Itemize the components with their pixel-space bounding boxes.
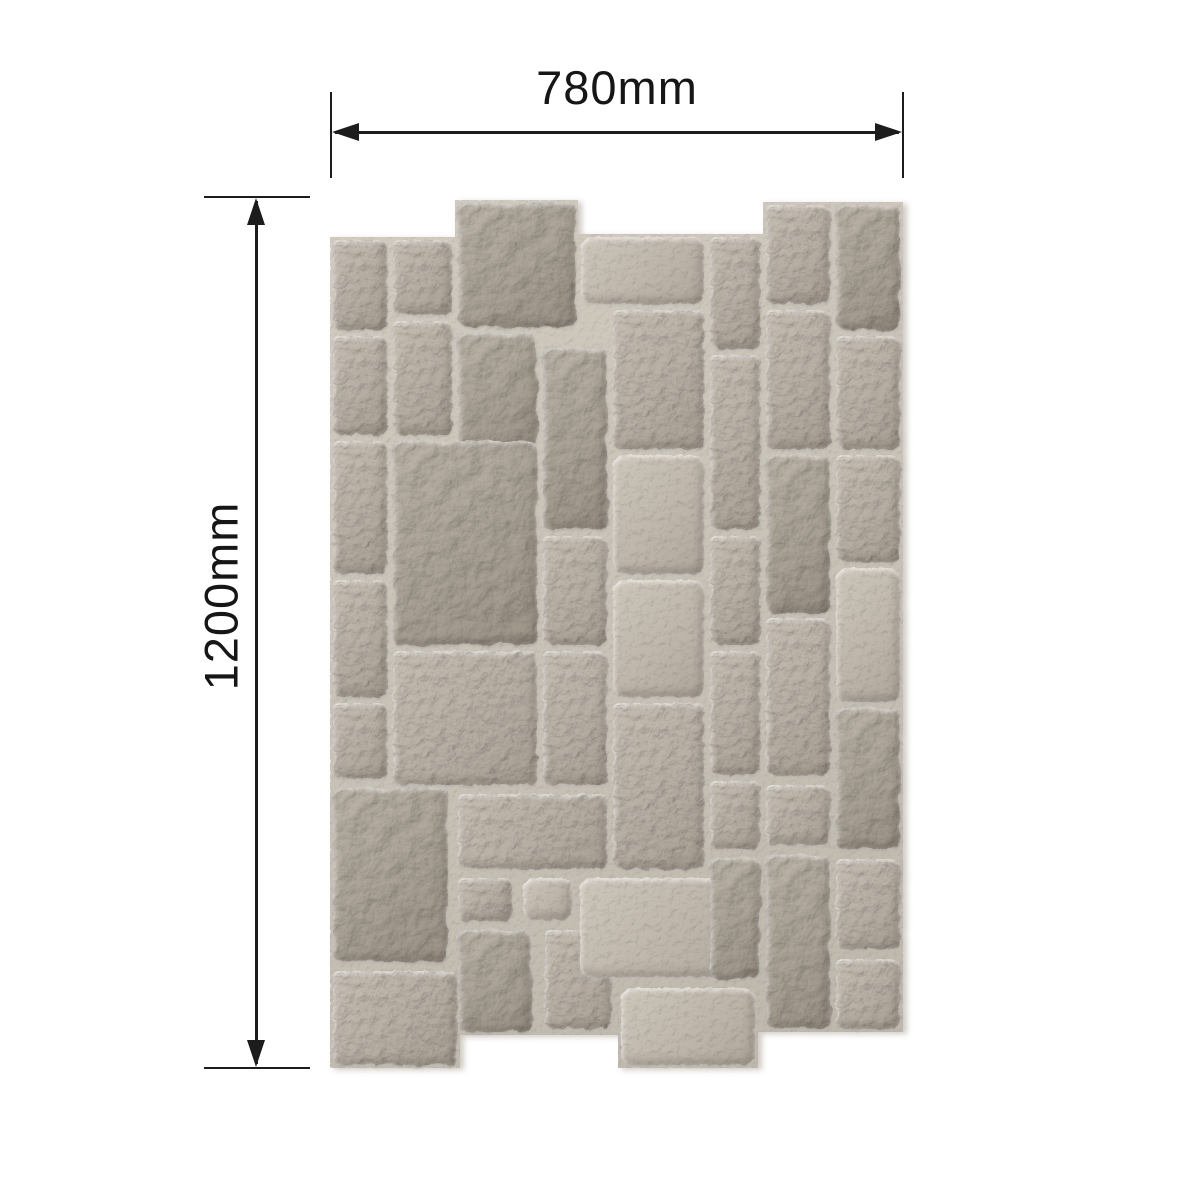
- stone-block: [393, 651, 537, 785]
- width-dimension: [331, 92, 903, 178]
- height-dimension: [204, 197, 310, 1068]
- stone-block: [836, 708, 900, 849]
- stone-block: [766, 855, 830, 1029]
- width-dimension-line: [335, 131, 899, 134]
- stone-block: [333, 441, 387, 574]
- stone-block: [523, 878, 572, 920]
- stone-block: [710, 536, 760, 645]
- stone-block: [621, 988, 755, 1065]
- stone-block: [836, 455, 900, 562]
- stone-panel: [330, 200, 903, 1068]
- stone-block: [766, 205, 830, 304]
- stone-block: [710, 858, 760, 979]
- stone-block: [613, 580, 704, 697]
- stone-block: [766, 455, 830, 612]
- arrowhead-up-icon: [247, 198, 265, 225]
- arrowhead-left-icon: [332, 123, 359, 141]
- stone-block: [710, 781, 760, 849]
- arrowhead-right-icon: [875, 123, 902, 141]
- stone-block: [393, 441, 537, 645]
- stone-block: [543, 348, 607, 530]
- stone-block: [458, 203, 575, 327]
- stone-block: [333, 580, 387, 697]
- stone-block: [613, 455, 704, 574]
- stone-block: [333, 240, 387, 330]
- stone-block: [393, 240, 452, 315]
- stone-block: [458, 794, 607, 869]
- page-root: { "title": "Stone wall panel dimension d…: [0, 0, 1200, 1200]
- width-extension-tick-right: [902, 92, 904, 178]
- stone-block: [581, 237, 704, 304]
- stone-block: [836, 859, 900, 949]
- height-dimension-line: [255, 201, 258, 1064]
- stone-block: [393, 321, 452, 435]
- stone-block: [710, 651, 760, 775]
- stone-block: [836, 568, 900, 702]
- stone-block: [710, 237, 760, 349]
- stone-block: [766, 310, 830, 449]
- stone-block: [766, 618, 830, 775]
- stone-block: [613, 310, 704, 449]
- stone-block: [458, 333, 537, 449]
- stone-block: [333, 971, 457, 1065]
- stone-block: [836, 205, 900, 330]
- stone-block: [458, 878, 512, 921]
- stone-block: [766, 785, 830, 845]
- stone-block: [543, 651, 607, 785]
- stone-block: [836, 959, 900, 1029]
- stone-block: [458, 930, 532, 1032]
- height-extension-tick-bottom: [204, 1067, 310, 1069]
- stone-block: [613, 703, 704, 869]
- stone-block: [333, 703, 387, 779]
- stone-block: [543, 536, 607, 645]
- stone-block: [836, 336, 900, 449]
- arrowhead-down-icon: [247, 1040, 265, 1067]
- stone-block: [710, 355, 760, 530]
- stone-block: [333, 788, 447, 962]
- stone-block: [333, 336, 387, 435]
